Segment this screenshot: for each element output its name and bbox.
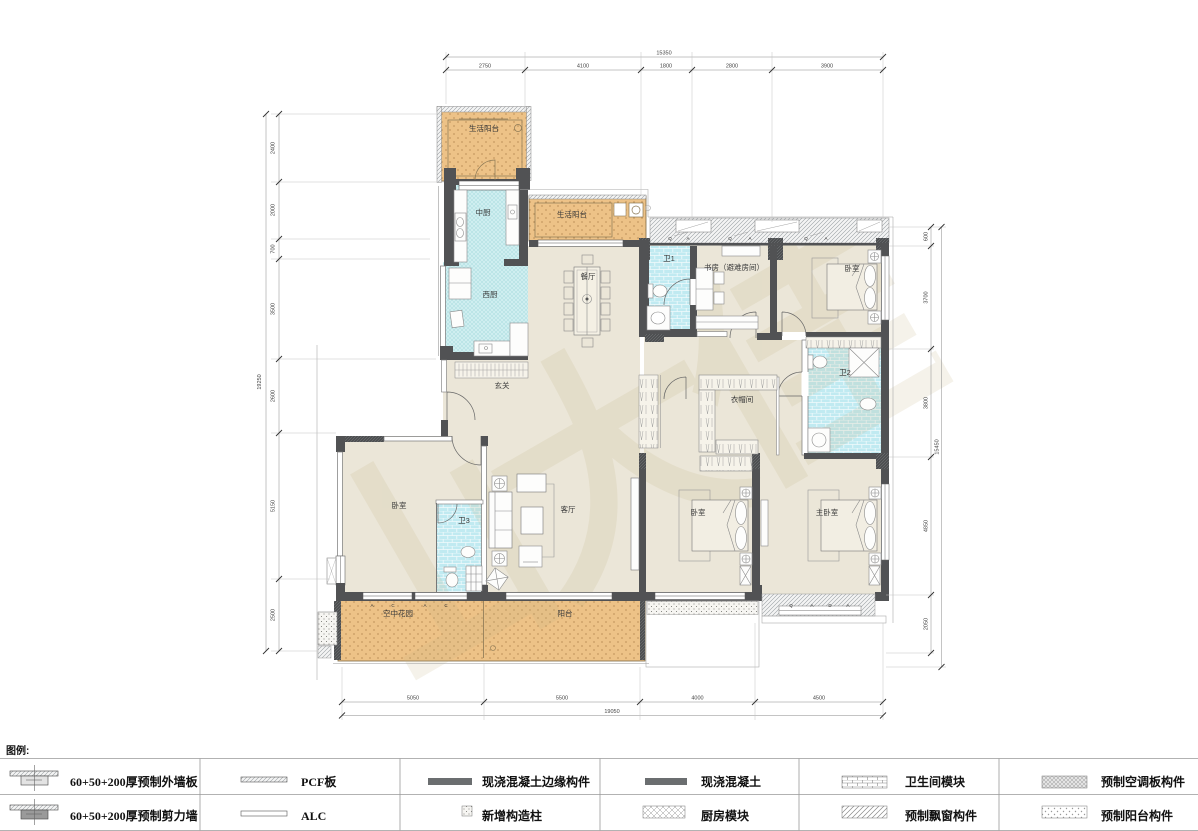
svg-text:4850: 4850 <box>924 520 930 532</box>
svg-text:ALC: ALC <box>301 809 326 823</box>
svg-text:卫3: 卫3 <box>458 516 470 525</box>
svg-text:卧室: 卧室 <box>845 263 860 273</box>
svg-text:西厨: 西厨 <box>483 290 498 299</box>
svg-text:现浇混凝土边缘构件: 现浇混凝土边缘构件 <box>482 774 590 789</box>
svg-text:2800: 2800 <box>726 64 738 70</box>
svg-text:15350: 15350 <box>656 51 671 57</box>
svg-text:15450: 15450 <box>935 439 941 454</box>
svg-text:5050: 5050 <box>407 696 419 702</box>
svg-text:厨房模块: 厨房模块 <box>701 808 750 823</box>
svg-text:卫生间模块: 卫生间模块 <box>905 774 966 789</box>
svg-text:预制飘窗构件: 预制飘窗构件 <box>905 808 977 823</box>
svg-text:书房（避难房间）: 书房（避难房间） <box>704 262 764 272</box>
svg-text:A: A <box>423 603 426 608</box>
svg-text:3900: 3900 <box>821 64 833 70</box>
svg-text:预制空调板构件: 预制空调板构件 <box>1101 774 1185 789</box>
svg-text:阳台: 阳台 <box>558 608 573 618</box>
svg-text:4500: 4500 <box>813 696 825 702</box>
svg-text:5150: 5150 <box>271 500 277 512</box>
svg-text:Q: Q <box>728 236 732 241</box>
svg-text:2750: 2750 <box>479 64 491 70</box>
svg-text:2500: 2500 <box>271 609 277 621</box>
svg-text:中厨: 中厨 <box>476 207 491 217</box>
svg-text:卫2: 卫2 <box>839 368 851 377</box>
svg-text:A: A <box>824 236 827 241</box>
svg-text:2050: 2050 <box>924 618 930 630</box>
svg-text:2000: 2000 <box>271 204 277 216</box>
svg-text:卧室: 卧室 <box>392 500 407 510</box>
svg-text:卧室: 卧室 <box>691 507 706 517</box>
svg-text:餐厅: 餐厅 <box>581 272 596 281</box>
svg-text:3700: 3700 <box>924 291 930 303</box>
svg-text:A: A <box>686 236 689 241</box>
svg-text:卫1: 卫1 <box>663 254 675 263</box>
svg-text:19050: 19050 <box>604 709 619 715</box>
svg-text:3800: 3800 <box>924 397 930 409</box>
svg-text:生活阳台: 生活阳台 <box>557 209 587 219</box>
svg-text:预制阳台构件: 预制阳台构件 <box>1101 808 1173 823</box>
svg-text:600: 600 <box>924 232 930 241</box>
svg-text:4000: 4000 <box>691 696 703 702</box>
svg-text:空中花园: 空中花园 <box>383 608 413 618</box>
svg-text:A: A <box>370 603 373 608</box>
svg-text:Q: Q <box>668 236 672 241</box>
svg-text:60+50+200厚预制剪力墙: 60+50+200厚预制剪力墙 <box>70 808 198 823</box>
svg-text:新增构造柱: 新增构造柱 <box>482 808 542 823</box>
svg-text:A: A <box>846 603 849 608</box>
svg-text:2400: 2400 <box>271 142 277 154</box>
svg-text:60+50+200厚预制外墙板: 60+50+200厚预制外墙板 <box>70 774 199 789</box>
svg-text:19250: 19250 <box>257 374 263 389</box>
svg-text:Q: Q <box>789 603 793 608</box>
svg-text:主卧室: 主卧室 <box>816 507 839 517</box>
svg-text:700: 700 <box>271 244 277 253</box>
svg-text:A: A <box>748 236 751 241</box>
svg-text:现浇混凝土: 现浇混凝土 <box>701 774 761 789</box>
svg-text:玄关: 玄关 <box>495 380 510 390</box>
svg-text:衣帽间: 衣帽间 <box>731 394 754 404</box>
svg-text:3500: 3500 <box>271 303 277 315</box>
svg-text:生活阳台: 生活阳台 <box>469 123 499 133</box>
svg-text:Q: Q <box>804 236 808 241</box>
svg-text:图例:: 图例: <box>6 744 29 757</box>
svg-text:A: A <box>810 603 813 608</box>
svg-text:PCF板: PCF板 <box>301 774 337 789</box>
svg-text:客厅: 客厅 <box>561 504 576 514</box>
svg-text:2600: 2600 <box>271 390 277 402</box>
svg-text:1800: 1800 <box>660 64 672 70</box>
svg-text:5500: 5500 <box>556 696 568 702</box>
svg-text:4100: 4100 <box>577 64 589 70</box>
